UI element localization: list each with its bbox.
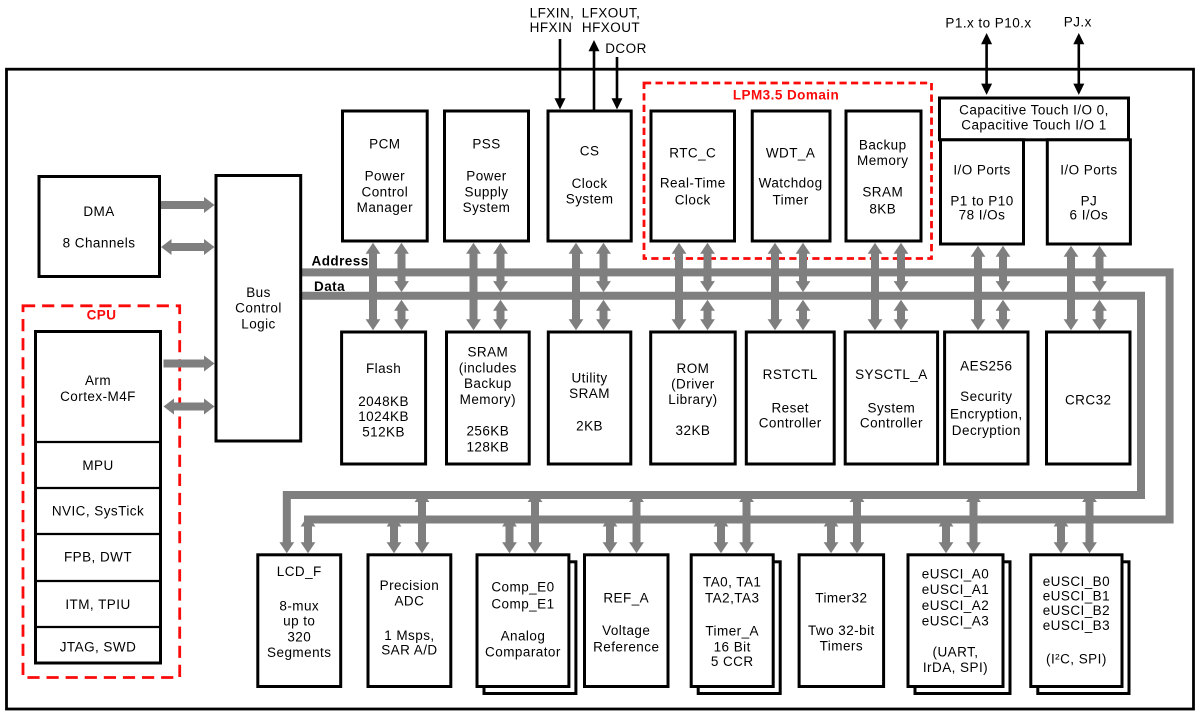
svg-text:I/O Ports: I/O Ports — [1060, 163, 1117, 178]
svg-text:512KB: 512KB — [362, 424, 405, 439]
svg-text:Capacitive Touch I/O 0,: Capacitive Touch I/O 0, — [959, 103, 1109, 118]
svg-text:LPM3.5 Domain: LPM3.5 Domain — [733, 87, 839, 102]
svg-text:Timer32: Timer32 — [815, 590, 867, 605]
svg-text:RSTCTL: RSTCTL — [763, 367, 818, 382]
svg-text:eUSCI_A1: eUSCI_A1 — [922, 582, 989, 597]
svg-text:REF_A: REF_A — [603, 591, 649, 606]
svg-text:Decryption: Decryption — [952, 423, 1021, 438]
svg-text:SRAM: SRAM — [569, 386, 610, 401]
svg-text:16 Bit: 16 Bit — [714, 639, 751, 654]
svg-text:eUSCI_B2: eUSCI_B2 — [1043, 603, 1110, 618]
svg-text:LFXOUT,: LFXOUT, — [582, 5, 641, 20]
svg-text:P1.x to P10.x: P1.x to P10.x — [945, 15, 1031, 30]
svg-text:128KB: 128KB — [466, 439, 509, 454]
svg-text:MPU: MPU — [82, 458, 113, 473]
svg-text:DCOR: DCOR — [605, 41, 647, 56]
svg-text:CRC32: CRC32 — [1065, 393, 1112, 408]
svg-text:Comp_E1: Comp_E1 — [491, 596, 554, 611]
svg-text:SYSCTL_A: SYSCTL_A — [855, 367, 928, 382]
svg-text:Power: Power — [365, 169, 406, 184]
svg-text:eUSCI_A3: eUSCI_A3 — [922, 614, 989, 629]
svg-text:LCD_F: LCD_F — [277, 564, 322, 579]
svg-text:Watchdog: Watchdog — [759, 176, 823, 191]
svg-text:1024KB: 1024KB — [358, 409, 409, 424]
svg-text:Logic: Logic — [241, 316, 276, 331]
svg-text:Real-Time: Real-Time — [660, 176, 726, 191]
svg-text:I/O Ports: I/O Ports — [953, 163, 1010, 178]
svg-text:2048KB: 2048KB — [358, 394, 409, 409]
svg-text:System: System — [463, 200, 511, 215]
svg-text:(includes: (includes — [459, 360, 517, 375]
svg-text:2KB: 2KB — [576, 419, 603, 434]
svg-text:Analog: Analog — [501, 628, 546, 643]
svg-text:Reset: Reset — [771, 401, 809, 416]
svg-text:eUSCI_B1: eUSCI_B1 — [1043, 588, 1110, 603]
svg-text:PJ: PJ — [1081, 193, 1098, 208]
svg-text:Comp_E0: Comp_E0 — [491, 580, 554, 595]
svg-text:Timer: Timer — [772, 193, 808, 208]
svg-text:PJ.x: PJ.x — [1064, 14, 1092, 29]
svg-text:Clock: Clock — [675, 193, 711, 208]
svg-text:System: System — [566, 192, 614, 207]
svg-text:Manager: Manager — [357, 200, 413, 215]
svg-text:ITM, TPIU: ITM, TPIU — [65, 597, 130, 612]
svg-text:ROM: ROM — [677, 361, 710, 376]
svg-text:Timer_A: Timer_A — [705, 623, 759, 638]
svg-text:TA2,TA3: TA2,TA3 — [705, 590, 759, 605]
svg-text:Utility: Utility — [571, 371, 607, 386]
svg-text:Controller: Controller — [759, 415, 822, 430]
svg-text:NVIC, SysTick: NVIC, SysTick — [52, 503, 144, 518]
svg-text:up to: up to — [283, 614, 315, 629]
svg-text:CPU: CPU — [87, 308, 117, 323]
svg-text:eUSCI_A0: eUSCI_A0 — [922, 566, 989, 581]
svg-text:Comparator: Comparator — [485, 644, 561, 659]
svg-text:Bus: Bus — [246, 285, 271, 300]
svg-text:Flash: Flash — [366, 361, 401, 376]
svg-text:Precision: Precision — [380, 578, 440, 593]
svg-text:SRAM: SRAM — [467, 345, 508, 360]
svg-text:8-mux: 8-mux — [279, 598, 319, 613]
svg-text:WDT_A: WDT_A — [766, 146, 816, 161]
svg-text:78 I/Os: 78 I/Os — [959, 208, 1006, 223]
svg-text:eUSCI_B0: eUSCI_B0 — [1043, 574, 1110, 589]
svg-text:5 CCR: 5 CCR — [711, 654, 754, 669]
svg-text:P1 to P10: P1 to P10 — [950, 193, 1013, 208]
svg-text:IrDA, SPI): IrDA, SPI) — [923, 660, 988, 675]
svg-text:Control: Control — [362, 184, 409, 199]
svg-text:Supply: Supply — [465, 184, 509, 199]
svg-text:FPB, DWT: FPB, DWT — [64, 550, 132, 565]
svg-text:Backup: Backup — [859, 138, 907, 153]
svg-text:32KB: 32KB — [676, 423, 711, 438]
svg-text:Controller: Controller — [860, 415, 923, 430]
svg-text:320: 320 — [287, 629, 311, 644]
svg-text:Security: Security — [960, 389, 1012, 404]
svg-text:System: System — [868, 401, 916, 416]
svg-text:DMA: DMA — [83, 204, 114, 219]
svg-text:Library): Library) — [668, 392, 717, 407]
svg-text:Voltage: Voltage — [602, 623, 650, 638]
svg-text:TA0, TA1: TA0, TA1 — [703, 574, 761, 589]
svg-text:CS: CS — [580, 144, 600, 159]
svg-text:Arm: Arm — [85, 373, 111, 388]
svg-text:(Driver: (Driver — [671, 377, 715, 392]
svg-text:Power: Power — [466, 169, 507, 184]
svg-text:SRAM: SRAM — [862, 185, 903, 200]
svg-text:Timers: Timers — [820, 638, 863, 653]
svg-text:Segments: Segments — [267, 645, 331, 660]
svg-text:Encryption,: Encryption, — [950, 406, 1022, 421]
svg-text:Backup: Backup — [464, 376, 512, 391]
svg-text:Address: Address — [312, 253, 369, 268]
svg-text:Clock: Clock — [572, 176, 608, 191]
svg-text:PSS: PSS — [472, 136, 500, 151]
svg-text:HFXOUT: HFXOUT — [582, 20, 640, 35]
svg-text:(I²C, SPI): (I²C, SPI) — [1046, 652, 1107, 667]
svg-text:6 I/Os: 6 I/Os — [1070, 208, 1109, 223]
svg-text:Capacitive Touch I/O 1: Capacitive Touch I/O 1 — [961, 117, 1106, 132]
svg-text:RTC_C: RTC_C — [669, 146, 716, 161]
svg-text:Memory: Memory — [857, 153, 908, 168]
svg-text:SAR A/D: SAR A/D — [381, 643, 437, 658]
svg-text:AES256: AES256 — [960, 359, 1012, 374]
svg-text:JTAG, SWD: JTAG, SWD — [60, 640, 137, 655]
svg-text:Control: Control — [235, 301, 282, 316]
svg-text:8 Channels: 8 Channels — [63, 235, 136, 250]
svg-text:(UART,: (UART, — [933, 644, 979, 659]
svg-text:Reference: Reference — [593, 639, 659, 654]
svg-text:eUSCI_A2: eUSCI_A2 — [922, 598, 989, 613]
svg-text:Data: Data — [314, 279, 345, 294]
svg-text:PCM: PCM — [369, 136, 400, 151]
svg-text:HFXIN: HFXIN — [530, 20, 573, 35]
svg-text:eUSCI_B3: eUSCI_B3 — [1043, 618, 1110, 633]
svg-text:1 Msps,: 1 Msps, — [384, 628, 434, 643]
svg-text:LFXIN,: LFXIN, — [530, 5, 575, 20]
svg-text:Two 32-bit: Two 32-bit — [808, 623, 875, 638]
svg-text:8KB: 8KB — [869, 201, 896, 216]
svg-text:Cortex-M4F: Cortex-M4F — [60, 389, 136, 404]
svg-text:ADC: ADC — [394, 594, 424, 609]
svg-text:Memory): Memory) — [460, 392, 516, 407]
svg-text:256KB: 256KB — [466, 424, 509, 439]
